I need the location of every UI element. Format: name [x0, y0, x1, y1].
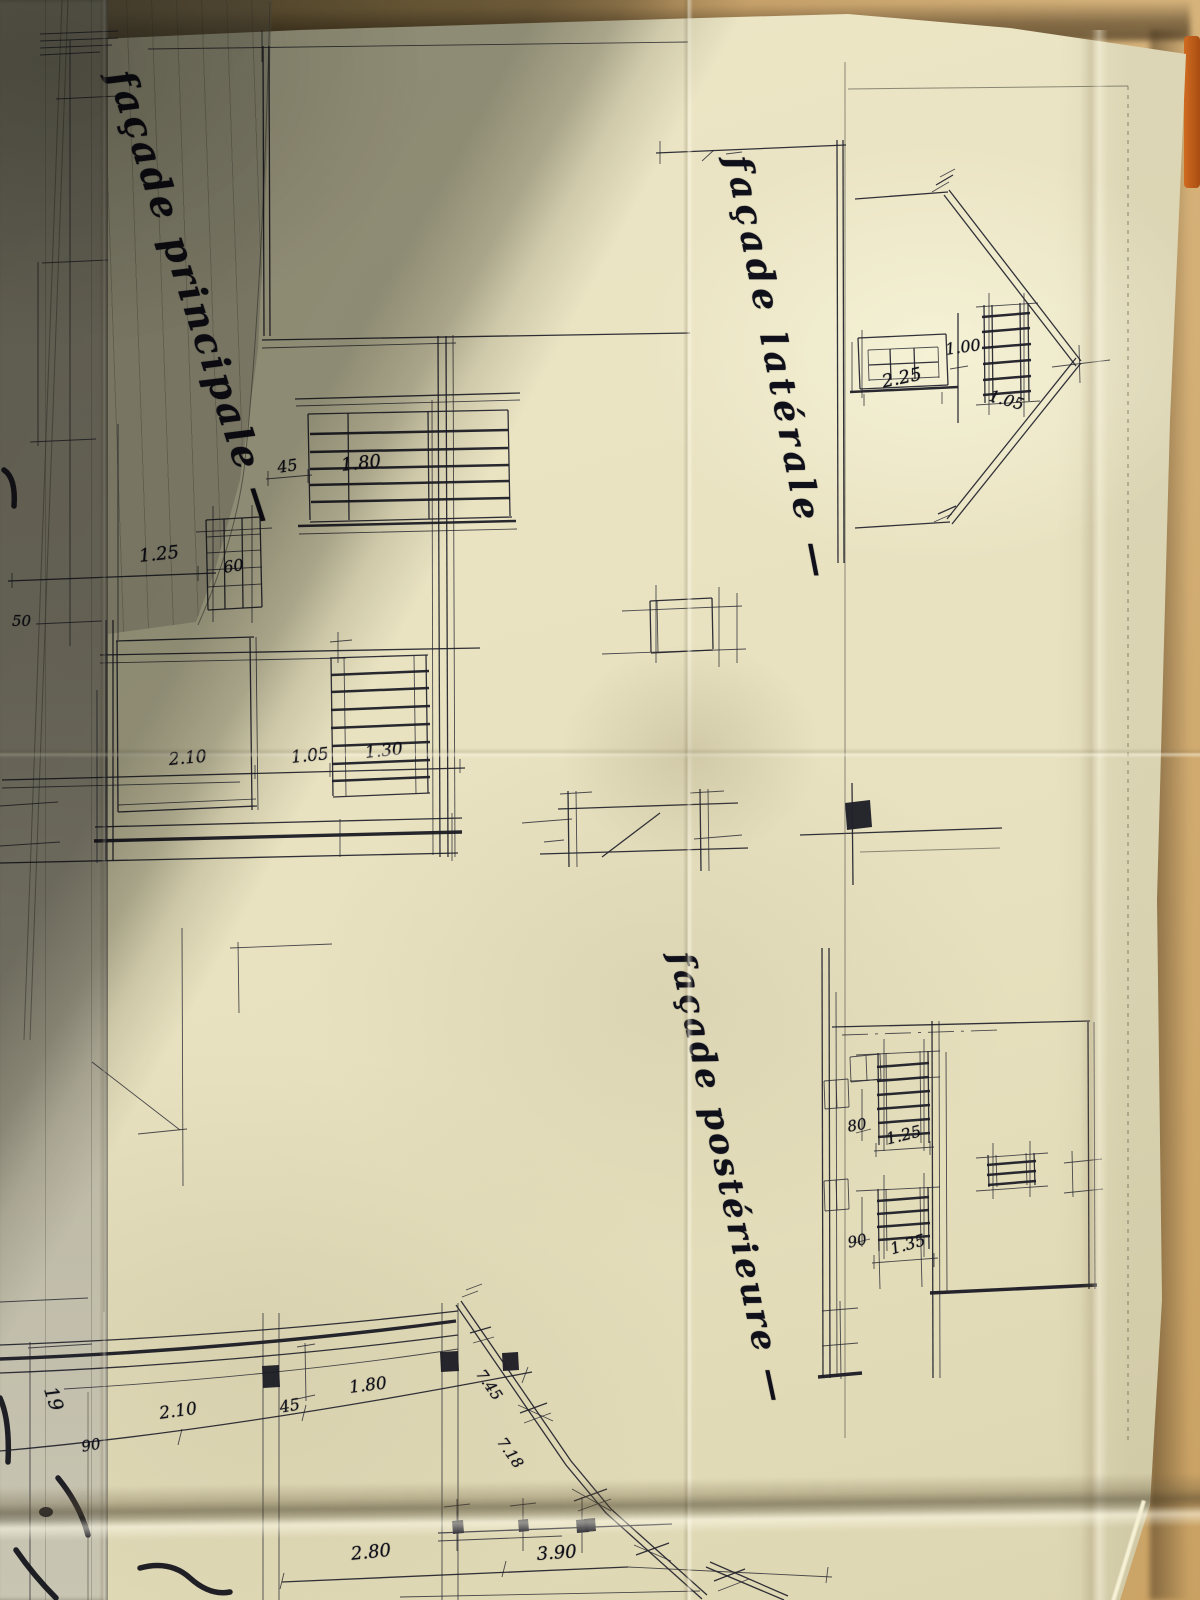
dim-label: 2.10 — [168, 747, 207, 770]
dim-label: 1.05 — [290, 744, 330, 768]
facade-posterieure-drawing — [818, 948, 1103, 1379]
fence-drawing — [0, 1284, 832, 1600]
dim-label: 1.30 — [364, 739, 404, 763]
dim-label: 50 — [12, 612, 31, 630]
stray-lines — [92, 862, 332, 1312]
dim-label: 3.90 — [536, 1541, 577, 1565]
dim-label: 45 — [276, 455, 299, 477]
paper-wrinkle — [560, 640, 820, 860]
dim-label: 80 — [846, 1115, 868, 1136]
dim-label: 45 — [278, 1394, 301, 1416]
dim-label: 1.25 — [138, 542, 180, 567]
dim-label: 2.80 — [350, 1540, 392, 1565]
dim-label: 1.80 — [340, 451, 382, 476]
dim-label: 60 — [222, 555, 245, 577]
dim-label: 90 — [80, 1435, 102, 1456]
photo-architectural-plan: façade principale — façade latérale — fa… — [0, 0, 1200, 1600]
